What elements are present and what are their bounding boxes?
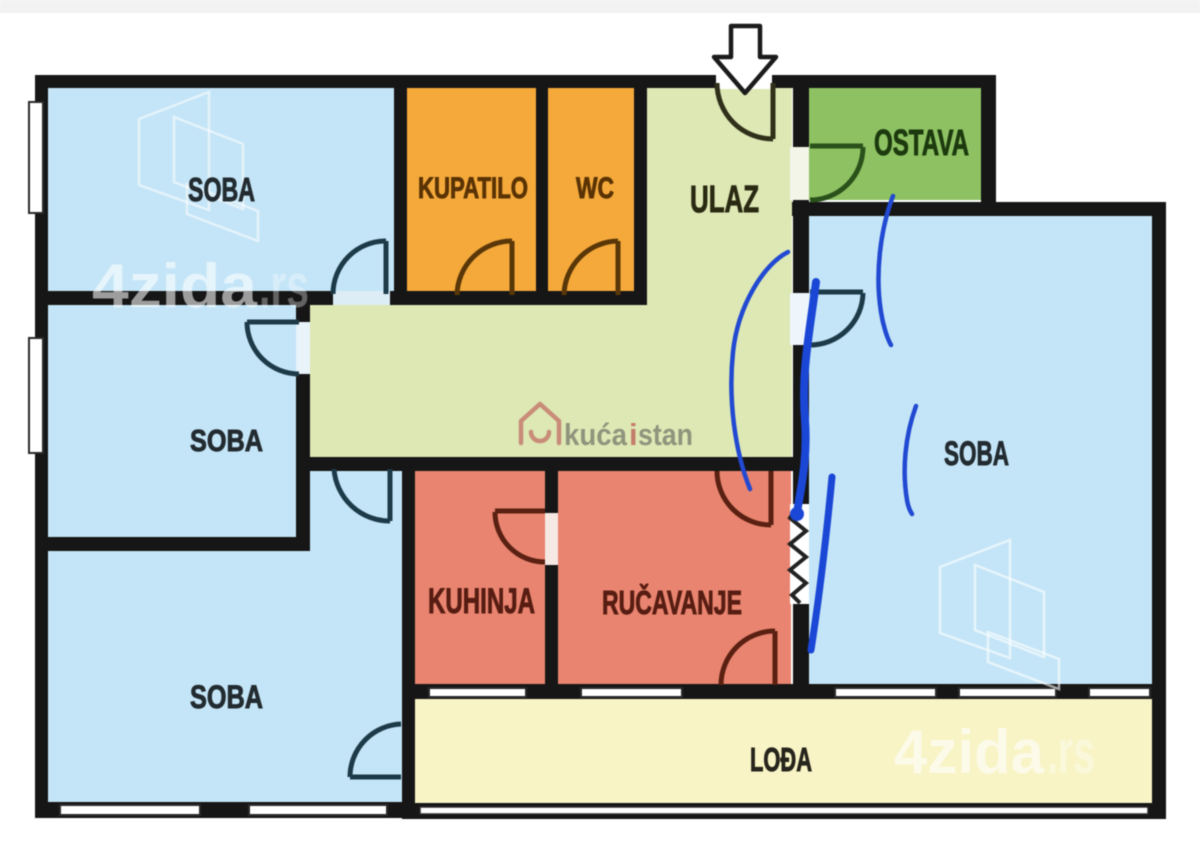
svg-text:OSTAVA: OSTAVA: [874, 122, 969, 163]
svg-text:SOBA: SOBA: [190, 679, 263, 715]
svg-text:RUČAVANJE: RUČAVANJE: [602, 583, 742, 621]
svg-text:kuća: kuća: [564, 417, 628, 452]
svg-text:4zida: 4zida: [894, 718, 1044, 787]
svg-text:WC: WC: [576, 172, 614, 205]
svg-text:SOBA: SOBA: [944, 435, 1009, 473]
svg-text:i: i: [629, 417, 638, 452]
svg-text:ULAZ: ULAZ: [690, 179, 759, 221]
svg-text:LOĐA: LOĐA: [750, 741, 812, 778]
svg-text:.rs: .rs: [259, 252, 309, 321]
svg-text:stan: stan: [638, 417, 693, 452]
svg-text:4zida: 4zida: [92, 252, 258, 321]
svg-text:KUPATILO: KUPATILO: [418, 172, 528, 205]
svg-text:SOBA: SOBA: [190, 423, 263, 458]
svg-text:SOBA: SOBA: [188, 171, 255, 208]
svg-text:.rs: .rs: [1047, 718, 1095, 787]
svg-text:KUHINJA: KUHINJA: [428, 582, 535, 621]
